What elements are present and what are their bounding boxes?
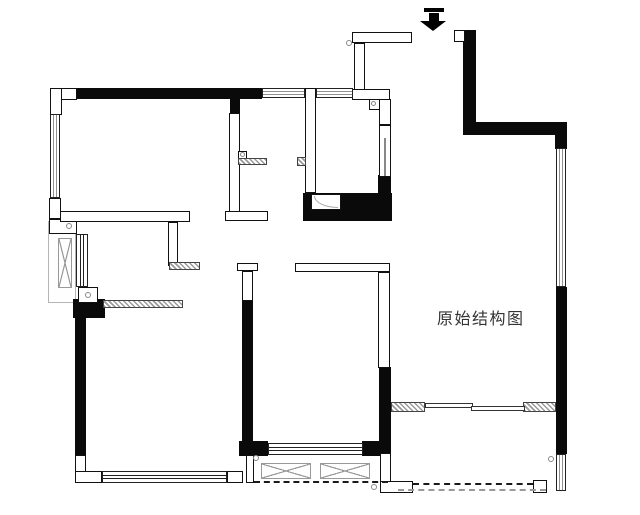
entry-arrow-icon (420, 8, 447, 31)
block-entry-square (454, 30, 465, 42)
hatch-counter (238, 158, 267, 165)
corner-bedroom2-right (227, 471, 243, 483)
marker-dot-balcony-right-2 (371, 484, 377, 490)
marker-dot-pipe (371, 101, 376, 106)
balcony-xbox-2 (320, 463, 370, 479)
entry-arrow-bar (424, 8, 444, 12)
window-left-mid (76, 234, 88, 287)
window-bedroom1-left (50, 114, 60, 198)
window-bedroom2-bottom (102, 471, 227, 483)
sliding-panel-2 (471, 406, 525, 411)
balcony-mid-edge (254, 481, 388, 483)
wall-bedroom1-bottom (60, 211, 190, 222)
plan-title-label: 原始结构图 (437, 305, 525, 329)
hatch-bath-door (297, 157, 306, 166)
window-midroom-bottom (268, 443, 363, 455)
corner-bottomleft-h (75, 471, 102, 483)
balcony-xbox-1 (261, 463, 311, 479)
shaft-xbox (58, 238, 72, 288)
wall-entry-top (352, 32, 412, 43)
wall-bath-right-lower (378, 175, 391, 195)
wall-mid-upper (242, 271, 253, 301)
entry-arrow-head (420, 21, 446, 31)
wall-left-lower (75, 315, 86, 455)
wall-midroom-corner-left (239, 441, 268, 456)
hatch-left-long (103, 300, 183, 308)
marker-dot-balcony-right-1 (548, 456, 554, 462)
wall-bedroom1-right-top (230, 99, 240, 113)
marker-dot-counter (240, 152, 245, 157)
wall-midroom-right-upper (378, 272, 390, 368)
wall-dining-stub (168, 222, 178, 266)
wall-right-stub (555, 135, 567, 149)
marker-dot-balcony-mid (253, 455, 259, 461)
wall-balcony-right-bottom-right (533, 480, 547, 493)
balcony-right-edge-2 (398, 489, 546, 491)
wall-entry-vertical (354, 43, 365, 90)
hatch-living-bottom-left (391, 402, 425, 412)
window-top-bath (316, 88, 353, 98)
wall-bath-right-top (379, 99, 391, 125)
hatch-stub-end (169, 262, 200, 270)
hatch-living-bottom-right (523, 402, 556, 412)
marker-dot-left-2 (85, 292, 91, 298)
marker-dot-entry (346, 40, 352, 46)
wall-bedroom1-top (77, 88, 262, 99)
wall-entry-right (463, 30, 476, 135)
balcony-right-edge-1 (413, 483, 533, 485)
wall-right-mid (556, 287, 567, 454)
floor-plan: 原始结构图 (0, 0, 640, 515)
window-right-lower (556, 454, 566, 491)
wall-bedroom1-right-foot (225, 211, 268, 221)
corner-topleft-v (50, 88, 62, 115)
wall-mid-cap (237, 263, 258, 271)
marker-dot-left-1 (66, 223, 72, 229)
wall-bath-left (305, 88, 316, 193)
wall-midroom-top (295, 263, 390, 272)
wall-top-right (463, 122, 567, 135)
window-right-upper (556, 148, 566, 287)
window-top-kitchen (262, 88, 305, 98)
wall-mid-vertical (242, 300, 253, 442)
bath-door-leaf (384, 138, 386, 176)
sliding-panel-1 (425, 403, 473, 408)
wall-living-left (379, 367, 391, 443)
